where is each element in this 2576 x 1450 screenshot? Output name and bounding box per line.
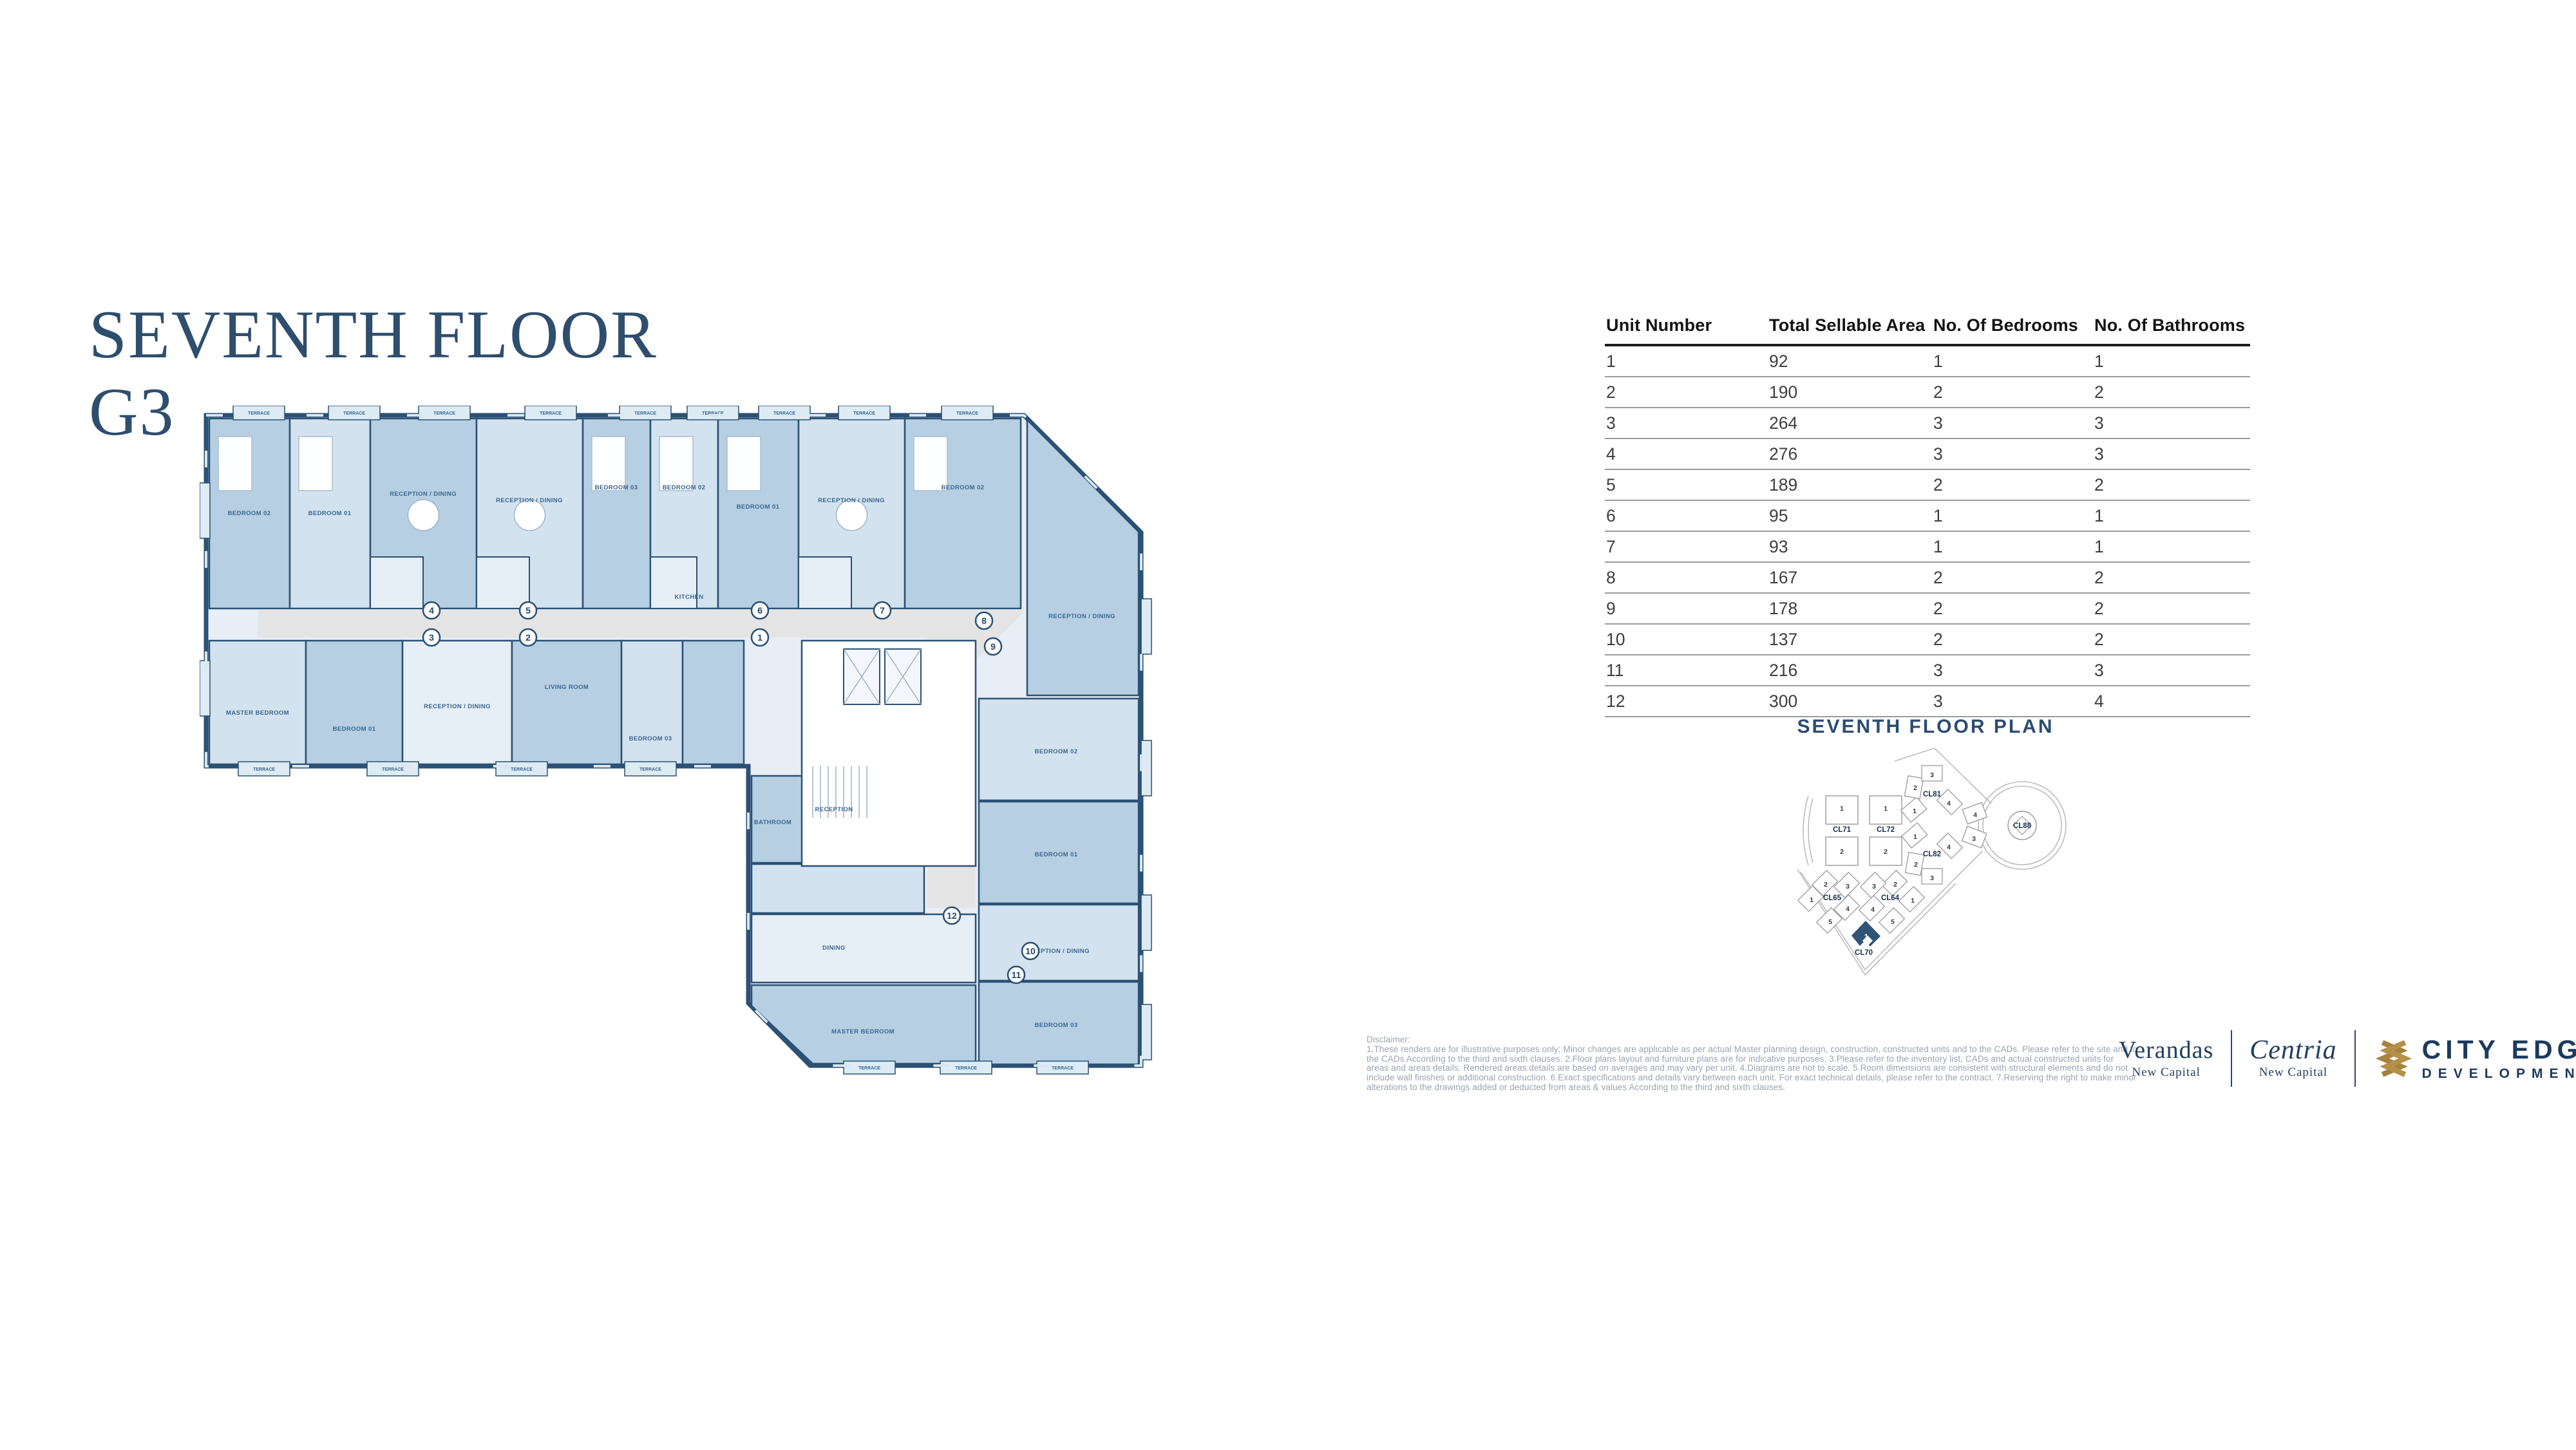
unit-number-cell: 8 xyxy=(1605,562,1768,593)
room-label: MASTER BEDROOM xyxy=(226,710,289,717)
keymap-unit-number: 4 xyxy=(1846,905,1850,913)
plan-room xyxy=(683,641,744,764)
table-row: 326433 xyxy=(1605,408,2250,438)
terrace-tab xyxy=(1141,740,1151,796)
keymap-unit-number: 4 xyxy=(1871,906,1875,914)
bathrooms-cell: 2 xyxy=(2093,624,2250,655)
terrace-label: TERRACE xyxy=(634,411,656,416)
bedrooms-cell: 1 xyxy=(1932,345,2093,377)
keymap-unit-number: 4 xyxy=(1947,843,1951,851)
col-unit-number: Unit Number xyxy=(1605,315,1768,345)
bathrooms-cell: 1 xyxy=(2093,345,2250,377)
bedrooms-cell: 3 xyxy=(1932,408,2093,438)
keymap-cluster-label: CL71 xyxy=(1833,826,1851,834)
unit-table: Unit Number Total Sellable Area No. Of B… xyxy=(1605,315,2250,717)
area-cell: 300 xyxy=(1768,686,1932,717)
terrace-label: TERRACE xyxy=(382,767,404,772)
unit-number-cell: 9 xyxy=(1605,593,1768,624)
bedrooms-cell: 2 xyxy=(1932,624,2093,655)
unit-marker-number: 5 xyxy=(526,605,531,616)
table-row: 1230034 xyxy=(1605,686,2250,717)
dining-table-furniture xyxy=(837,500,867,531)
unit-number-cell: 7 xyxy=(1605,531,1768,562)
terrace-label: TERRACE xyxy=(773,411,795,416)
keymap-cluster-label: CL64 xyxy=(1881,894,1900,902)
table-row: 816722 xyxy=(1605,562,2250,593)
plan-room xyxy=(621,641,683,764)
table-row: 1013722 xyxy=(1605,624,2250,655)
page-title-line1: SEVENTH FLOOR xyxy=(89,296,658,373)
keymap-unit-number: 1 xyxy=(1913,807,1917,815)
room-label: BEDROOM 01 xyxy=(1035,851,1078,858)
area-cell: 137 xyxy=(1768,624,1932,655)
unit-number-cell: 11 xyxy=(1605,655,1768,686)
room-label: BATHROOM xyxy=(754,819,791,826)
plan-room xyxy=(752,914,976,983)
terrace-tab xyxy=(200,483,210,538)
area-cell: 189 xyxy=(1768,469,1932,500)
unit-marker-number: 2 xyxy=(526,632,531,643)
keymap-cluster-label: CL65 xyxy=(1823,894,1842,902)
table-row: 219022 xyxy=(1605,377,2250,408)
bedrooms-cell: 2 xyxy=(1932,562,2093,593)
keymap-cluster-label: CL70 xyxy=(1855,949,1873,957)
terrace-label: TERRACE xyxy=(853,411,875,416)
area-cell: 95 xyxy=(1768,500,1932,531)
plan-bathroom xyxy=(477,557,529,608)
room-label: RECEPTION / DINING xyxy=(818,497,885,504)
room-label: LIVING ROOM xyxy=(545,684,589,691)
unit-marker-number: 10 xyxy=(1025,946,1036,956)
room-label: BEDROOM 03 xyxy=(595,484,638,491)
unit-marker-number: 11 xyxy=(1012,970,1021,980)
bedrooms-cell: 3 xyxy=(1932,438,2093,469)
unit-number-cell: 4 xyxy=(1605,438,1768,469)
col-bedrooms: No. Of Bedrooms xyxy=(1932,315,2093,345)
floor-plan: TERRACETERRACETERRACETERRACETERRACETERRA… xyxy=(200,406,1153,1075)
disclaimer: Disclaimer: 1.These renders are for illu… xyxy=(1367,1035,2138,1093)
disclaimer-label: Disclaimer: xyxy=(1367,1035,2138,1045)
bathrooms-cell: 2 xyxy=(2093,593,2250,624)
bathrooms-cell: 1 xyxy=(2093,500,2250,531)
keymap-unit-number: 1 xyxy=(1884,805,1888,813)
verandas-name: Verandas xyxy=(2119,1037,2213,1063)
unit-number-cell: 5 xyxy=(1605,469,1768,500)
keymap-unit-number: 3 xyxy=(1930,874,1934,882)
verandas-subtitle: New Capital xyxy=(2132,1066,2201,1080)
terrace-label: TERRACE xyxy=(956,411,978,416)
bathrooms-cell: 3 xyxy=(2093,408,2250,438)
bathrooms-cell: 4 xyxy=(2093,686,2250,717)
room-label: RECEPTION / DINING xyxy=(390,491,457,498)
area-cell: 190 xyxy=(1768,377,1932,408)
unit-number-cell: 10 xyxy=(1605,624,1768,655)
bedrooms-cell: 3 xyxy=(1932,655,2093,686)
keymap-heading: SEVENTH FLOOR PLAN xyxy=(1797,716,2054,738)
terrace-label: TERRACE xyxy=(248,411,270,416)
unit-number-cell: 3 xyxy=(1605,408,1768,438)
plan-room xyxy=(1027,420,1139,695)
keymap-cluster-label: CL72 xyxy=(1877,826,1895,834)
terrace-label: TERRACE xyxy=(433,411,455,416)
terrace-label: TERRACE xyxy=(955,1066,977,1071)
keymap-unit-number: 1 xyxy=(1913,833,1917,841)
logo-verandas: Verandas New Capital xyxy=(2119,1037,2213,1080)
unit-marker-number: 9 xyxy=(990,641,996,652)
logo-cityedge: CITY EDGE DEVELOPMENTS xyxy=(2373,1036,2576,1082)
terrace-label: TERRACE xyxy=(1052,1066,1074,1071)
keymap-unit-number: 1 xyxy=(1840,805,1844,813)
bathrooms-cell: 2 xyxy=(2093,377,2250,408)
unit-marker-number: 8 xyxy=(981,616,987,626)
room-label: BEDROOM 02 xyxy=(228,510,271,517)
centria-subtitle: New Capital xyxy=(2259,1066,2328,1080)
keymap-cluster-label: CL81 xyxy=(1923,791,1942,798)
col-bathrooms: No. Of Bathrooms xyxy=(2093,315,2250,345)
terrace-label: TERRACE xyxy=(639,767,661,772)
area-cell: 92 xyxy=(1768,345,1932,377)
keymap-unit-number: 3 xyxy=(1846,883,1850,890)
unit-marker-number: 4 xyxy=(429,605,434,616)
keymap-unit-number: 2 xyxy=(1840,848,1844,856)
room-label: RECEPTION / DINING xyxy=(496,497,563,504)
logo-divider xyxy=(2354,1030,2356,1087)
room-label: MASTER BEDROOM xyxy=(831,1028,895,1035)
plan-room xyxy=(979,905,1139,981)
bed-furniture xyxy=(299,437,332,491)
unit-number-cell: 2 xyxy=(1605,377,1768,408)
plan-room xyxy=(306,641,402,764)
table-header-row: Unit Number Total Sellable Area No. Of B… xyxy=(1605,315,2250,345)
cityedge-icon xyxy=(2373,1039,2413,1078)
page: { "page": {"title_line1": "SEVENTH FLOOR… xyxy=(0,0,2576,1450)
area-cell: 276 xyxy=(1768,438,1932,469)
plan-bathroom xyxy=(370,557,423,608)
room-label: BEDROOM 01 xyxy=(737,504,780,511)
unit-number-cell: 12 xyxy=(1605,686,1768,717)
area-cell: 167 xyxy=(1768,562,1932,593)
unit-marker-number: 7 xyxy=(880,605,885,616)
bedrooms-cell: 1 xyxy=(1932,500,2093,531)
unit-marker-number: 6 xyxy=(757,605,762,616)
area-cell: 93 xyxy=(1768,531,1932,562)
keymap-unit-number: 2 xyxy=(1824,881,1828,889)
keymap-unit-number: 3 xyxy=(1872,883,1876,890)
plan-room xyxy=(209,641,306,764)
logo-bar: Verandas New Capital Centria New Capital… xyxy=(2119,1030,2576,1087)
terrace-tab xyxy=(200,661,210,716)
room-label: BEDROOM 03 xyxy=(629,735,672,742)
bedrooms-cell: 3 xyxy=(1932,686,2093,717)
keymap-unit-number: 2 xyxy=(1884,848,1888,856)
room-label: BEDROOM 02 xyxy=(942,484,985,491)
room-label: DINING xyxy=(822,945,846,952)
keymap-unit-number: 4 xyxy=(1973,811,1977,819)
keymap-unit-number: 5 xyxy=(1891,918,1895,926)
unit-marker-number: 1 xyxy=(757,632,762,643)
room-label: BEDROOM 01 xyxy=(308,510,352,517)
area-cell: 216 xyxy=(1768,655,1932,686)
room-label: RECEPTION / DINING xyxy=(424,703,491,710)
bed-furniture xyxy=(592,437,625,491)
site-keymap: 12CL7112CL721234CL811234CL8234CL8812345C… xyxy=(1797,746,2106,1003)
plan-room xyxy=(752,864,924,913)
keymap-unit-number: 5 xyxy=(1828,918,1832,926)
dining-table-furniture xyxy=(408,500,439,531)
terrace-label: TERRACE xyxy=(343,411,365,416)
logo-centria: Centria New Capital xyxy=(2249,1037,2336,1080)
keymap-unit-number: 3 xyxy=(1930,771,1934,779)
room-label: BEDROOM 01 xyxy=(333,726,376,733)
bed-furniture xyxy=(914,437,947,491)
bathrooms-cell: 3 xyxy=(2093,438,2250,469)
keymap-unit-number: 4 xyxy=(1947,800,1951,807)
room-label: BEDROOM 03 xyxy=(1035,1022,1078,1029)
unit-number-cell: 1 xyxy=(1605,345,1768,377)
bedrooms-cell: 2 xyxy=(1932,593,2093,624)
unit-marker-number: 12 xyxy=(947,910,957,921)
room-label: RECEPTION xyxy=(815,806,853,813)
bathrooms-cell: 3 xyxy=(2093,655,2250,686)
plan-room xyxy=(402,641,512,764)
bedrooms-cell: 2 xyxy=(1932,469,2093,500)
plan-room xyxy=(512,641,621,764)
area-cell: 178 xyxy=(1768,593,1932,624)
bed-furniture xyxy=(218,437,252,491)
centria-name: Centria xyxy=(2249,1037,2336,1063)
keymap-cluster-label: CL88 xyxy=(2013,822,2032,830)
table-row: 79311 xyxy=(1605,531,2250,562)
disclaimer-text: 1.These renders are for illustrative pur… xyxy=(1367,1044,2137,1092)
terrace-tab xyxy=(1141,599,1151,654)
bathrooms-cell: 2 xyxy=(2093,469,2250,500)
room-label: RECEPTION / DINING xyxy=(1048,613,1115,620)
terrace-tab xyxy=(1141,895,1151,950)
unit-number-cell: 6 xyxy=(1605,500,1768,531)
table-row: 69511 xyxy=(1605,500,2250,531)
bedrooms-cell: 1 xyxy=(1932,531,2093,562)
terrace-label: TERRACE xyxy=(253,767,275,772)
plan-room xyxy=(752,985,976,1064)
area-cell: 264 xyxy=(1768,408,1932,438)
keymap-unit-number: 2 xyxy=(1893,881,1897,889)
unit-marker-number: 3 xyxy=(429,632,434,643)
table-row: 19211 xyxy=(1605,345,2250,377)
keymap-unit-number: 2 xyxy=(1914,861,1918,869)
cityedge-line2: DEVELOPMENTS xyxy=(2422,1066,2576,1082)
col-sellable-area: Total Sellable Area xyxy=(1768,315,1932,345)
room-label: KITCHEN xyxy=(674,594,703,601)
keymap-unit-number: 1 xyxy=(1911,897,1915,905)
plan-bathroom xyxy=(650,557,697,608)
core xyxy=(802,641,976,866)
table-row: 1121633 xyxy=(1605,655,2250,686)
dining-table-furniture xyxy=(515,500,545,531)
keymap-unit-number: 2 xyxy=(1913,784,1917,792)
keymap-unit-number: 1 xyxy=(1810,896,1814,904)
table-row: 427633 xyxy=(1605,438,2250,469)
keymap-unit-number: 1 xyxy=(1864,932,1869,941)
bed-furniture xyxy=(659,437,693,491)
plan-bathroom xyxy=(799,557,851,608)
table-row: 518922 xyxy=(1605,469,2250,500)
bed-furniture xyxy=(727,437,761,491)
cityedge-line1: CITY EDGE xyxy=(2422,1036,2576,1063)
terrace-tab xyxy=(1141,1004,1151,1060)
logo-divider xyxy=(2231,1030,2232,1087)
terrace-label: TERRACE xyxy=(858,1066,880,1071)
table-row: 917822 xyxy=(1605,593,2250,624)
keymap-cluster-label: CL82 xyxy=(1923,851,1941,858)
terrace-label: TERRACE xyxy=(540,411,562,416)
room-label: BEDROOM 02 xyxy=(1035,748,1078,755)
keymap-unit-number: 3 xyxy=(1972,835,1976,843)
room-label: BEDROOM 02 xyxy=(663,484,706,491)
bathrooms-cell: 2 xyxy=(2093,562,2250,593)
terrace-label: TERRACE xyxy=(511,767,533,772)
bathrooms-cell: 1 xyxy=(2093,531,2250,562)
bedrooms-cell: 2 xyxy=(1932,377,2093,408)
